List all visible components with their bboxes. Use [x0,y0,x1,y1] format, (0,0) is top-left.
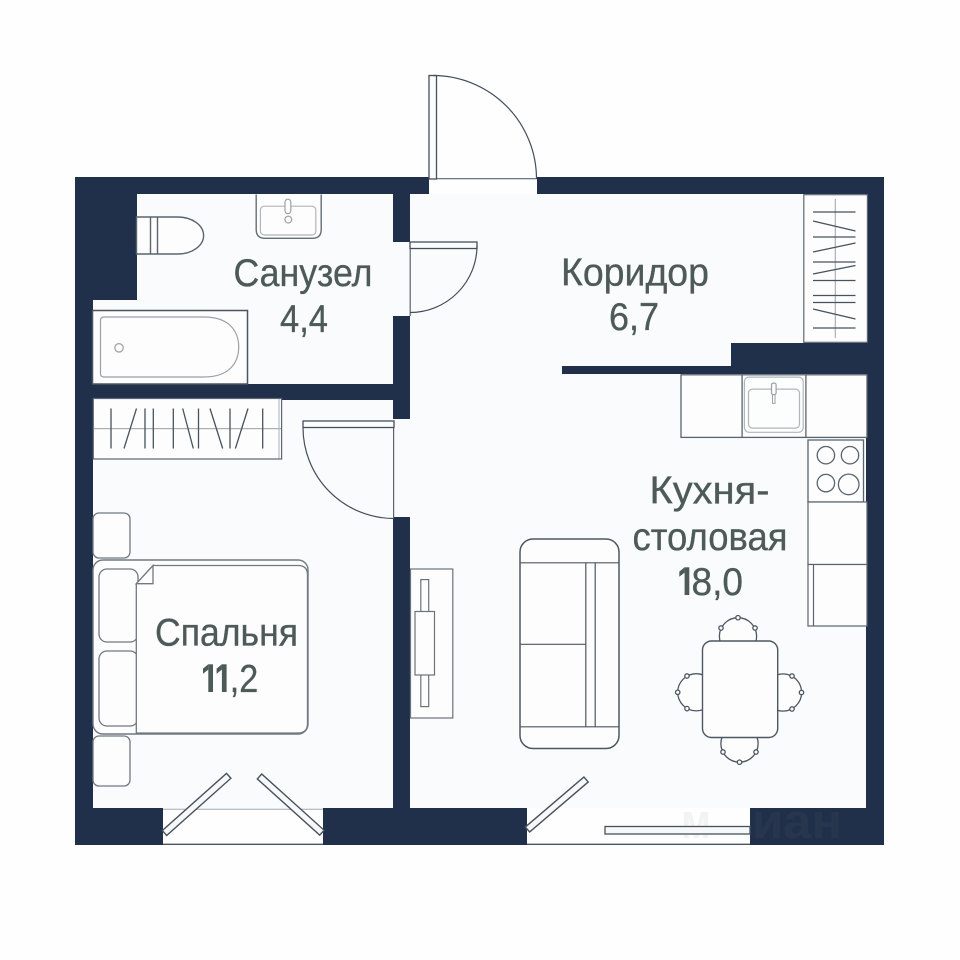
svg-text:м: м [681,795,711,849]
svg-text:иан: иан [752,795,842,849]
svg-text:Коридор: Коридор [561,252,709,295]
svg-text:,2: ,2 [230,658,258,701]
svg-text:6,7: 6,7 [609,296,659,339]
svg-text:4,4: 4,4 [280,298,328,341]
svg-text:8,0: 8,0 [692,561,744,604]
svg-text:Спальня: Спальня [155,611,298,654]
svg-text:Кухня-: Кухня- [650,470,770,513]
svg-text:столовая: столовая [633,516,788,559]
svg-text:Санузел: Санузел [234,252,373,295]
